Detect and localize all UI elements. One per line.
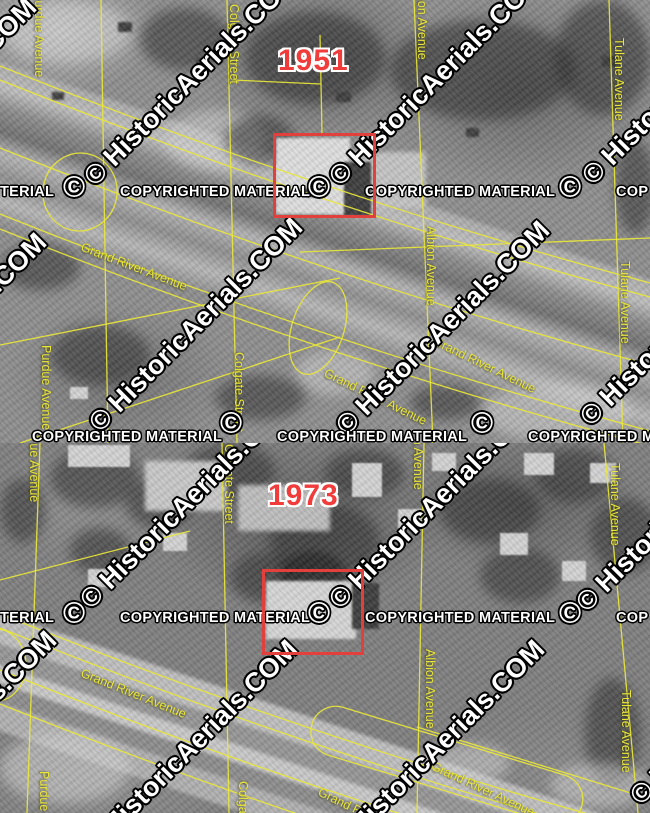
copyright-text: COPYRIGHTED MATERIAL (365, 610, 555, 626)
parcel-line (300, 238, 650, 252)
street-label-tulane-avenue: Tulane Avenue (612, 38, 626, 121)
street-label-tulane-avenue: Tulane Avenue (608, 463, 622, 546)
aerial-photo-1951: Purdue Avenue Purdue Avenue Colgate Stre… (0, 0, 650, 443)
copyright-text: COPYRIGHTED MATERIAL (528, 429, 650, 443)
copyright-symbol-icon: © (63, 173, 85, 203)
year-label-1973: 1973 (268, 479, 339, 513)
street-label-purdue-avenue: Purdue Avenue (37, 771, 51, 813)
street-label-tulane-avenue: Tulane Avenue (619, 690, 633, 773)
copyright-text: COPYRIGHTED MATERIAL (365, 184, 555, 200)
year-label-1951: 1951 (278, 44, 349, 78)
street-label-purdue-avenue: Purdue Avenue (27, 443, 41, 502)
parcel-line (232, 80, 321, 84)
street-label-colgate-street: Colgate Street (236, 781, 250, 813)
copyright-symbol-icon: © (63, 599, 85, 629)
street-label-tulane-avenue: Tulane Avenue (618, 261, 632, 344)
copyright-text: COPYRIGHTED MATERIAL (277, 429, 467, 443)
copyright-text: TERIAL (0, 610, 54, 626)
highlight-box-1951 (273, 133, 376, 218)
street-label-purdue-avenue: Purdue Avenue (39, 345, 53, 430)
copyright-text: TERIAL (0, 184, 54, 200)
street-line (0, 628, 650, 813)
copyright-symbol-icon: © (471, 409, 493, 439)
street-label-albion-avenue: Albion Avenue (415, 0, 429, 60)
road-loop (278, 274, 357, 381)
aerial-photo-1973: Purdue Avenue Purdue Avenue Colgate Stre… (0, 443, 650, 813)
copyright-symbol-icon: © (559, 599, 581, 629)
highlight-box-1973 (262, 569, 364, 655)
street-label-albion-avenue: Albion Avenue (423, 649, 437, 729)
copyright-text: COP (616, 184, 648, 200)
street-label-albion-avenue: Albion Avenue (411, 443, 425, 490)
street-label-albion-avenue: Albion Avenue (424, 226, 438, 306)
copyright-symbol-icon: © (220, 409, 242, 439)
copyright-text: COP (616, 610, 648, 626)
copyright-symbol-icon: © (559, 173, 581, 203)
copyright-text: COPYRIGHTED MATERIAL (32, 429, 222, 443)
historic-aerials-comparison: Purdue Avenue Purdue Avenue Colgate Stre… (0, 0, 650, 813)
